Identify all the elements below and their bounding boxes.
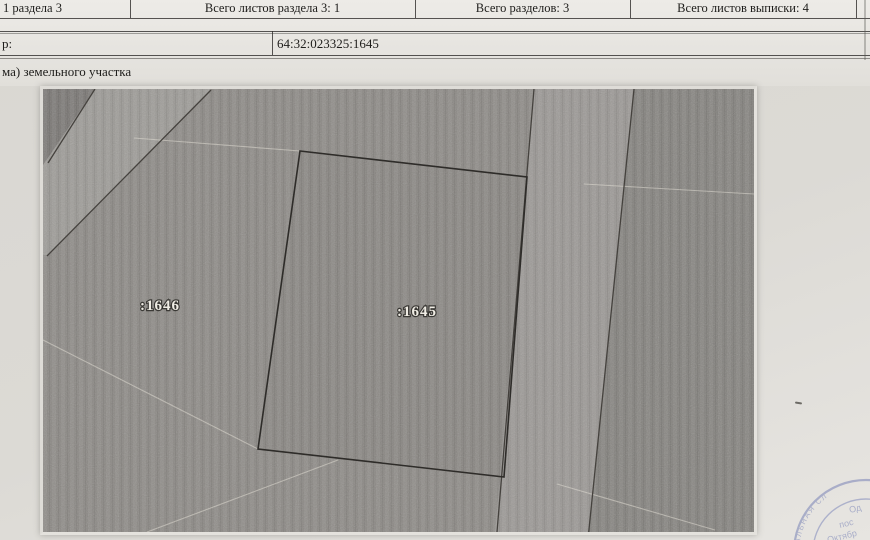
stamp-line-3: Октябр <box>826 528 858 540</box>
stamp-ring-text: АЛЬНАЯ СЛ <box>793 491 830 540</box>
table-rule <box>272 31 273 55</box>
table-rule <box>856 0 857 18</box>
land-plot-plan-image: :1646 :1645 <box>40 86 757 535</box>
plan-section-caption: ма) земельного участка <box>2 62 502 82</box>
page-edge-shadow <box>864 0 866 60</box>
table-rule <box>0 58 870 59</box>
table-rule <box>130 0 131 18</box>
table-rule <box>0 18 870 19</box>
parcel-1645-outline <box>258 151 527 477</box>
header-cell-total-sections: Всего разделов: 3 <box>415 0 630 18</box>
stamp-line-1: Од <box>848 502 863 515</box>
cadastral-number-value: 64:32:023325:1645 <box>277 34 837 54</box>
table-rule <box>0 55 870 56</box>
ink-speck <box>795 402 802 405</box>
table-rule <box>0 31 870 32</box>
table-rule <box>630 0 631 18</box>
stamp: АЛЬНАЯ СЛ Од пос Октябр <box>750 446 870 540</box>
parcel-label-1646: :1646 <box>140 298 180 314</box>
header-cell-section-sheets: Всего листов раздела 3: 1 <box>130 0 415 18</box>
table-rule <box>415 0 416 18</box>
stamp-drawing: АЛЬНАЯ СЛ Од пос Октябр <box>750 446 870 540</box>
parcel-label-1645: :1645 <box>397 304 437 320</box>
header-cell-total-sheets: Всего листов выписки: 4 <box>630 0 856 18</box>
header-cell-sheet-number: 1 раздела 3 <box>3 0 127 18</box>
plan-drawing: :1646 :1645 <box>43 89 754 532</box>
cadastral-number-label: р: <box>2 34 262 54</box>
header-table: 1 раздела 3 Всего листов раздела 3: 1 Вс… <box>0 0 870 86</box>
